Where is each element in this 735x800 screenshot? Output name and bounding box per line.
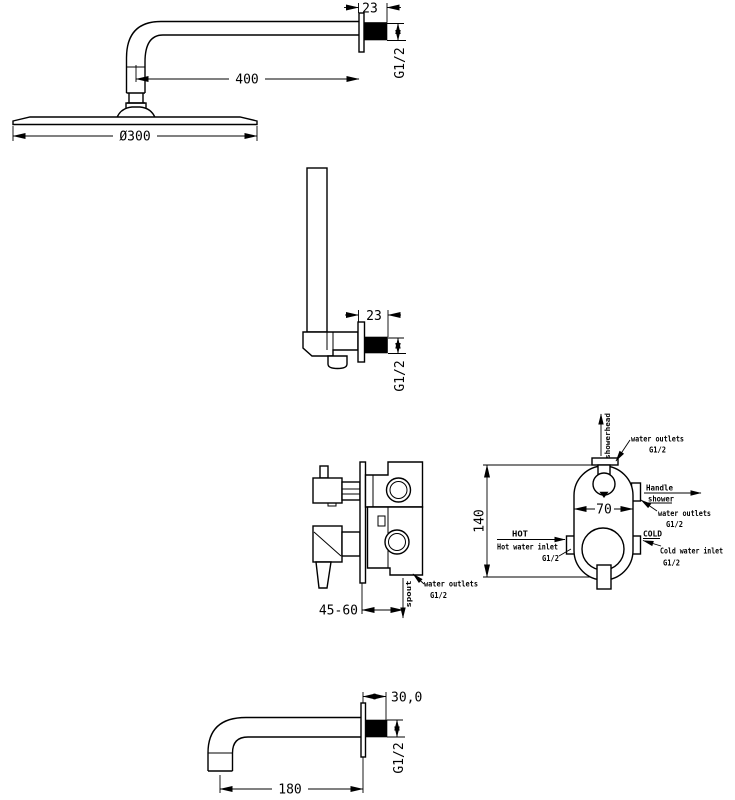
dim-g12-text: G1/2 (393, 360, 408, 391)
handshower-handle-bar (307, 168, 327, 332)
water-outlets-text: water outlets (658, 509, 711, 518)
dim-400: 400 (136, 65, 359, 88)
g12-text: G1/2 (542, 554, 559, 563)
g12-text: G1/2 (663, 559, 680, 568)
g12-text: G1/2 (649, 446, 666, 455)
dim-diameter-300: Ø300 (13, 126, 257, 145)
shower-head-disc (13, 117, 257, 125)
spout-inner-edge (233, 737, 362, 771)
dim-g12-text: G1/2 (393, 47, 408, 78)
right-water-outlet-label: water outlets G1/2 (641, 500, 711, 529)
dim-400-text: 400 (235, 73, 258, 88)
water-outlets-text: water outlets (424, 580, 478, 589)
dim-g12-head: G1/2 (387, 24, 408, 79)
wall-flange (359, 13, 364, 52)
dim-45-60-text: 45-60 (319, 604, 358, 619)
dim-140-text: 140 (473, 509, 488, 532)
shower-text: shower (648, 495, 674, 504)
lower-connector (342, 532, 360, 556)
dim-extension-lines (387, 24, 406, 41)
side-water-outlet-label: water outlets G1/2 (413, 574, 478, 600)
diverter-knob-nub (328, 503, 336, 506)
top-outlet-flange (592, 458, 618, 465)
dim-extension-lines (388, 338, 406, 354)
shower-head-assembly: 23 G1/2 400 Ø300 (13, 2, 408, 145)
g12-text: G1/2 (430, 591, 447, 600)
shower-arm-neck (127, 93, 146, 103)
valve-side-view: 45-60 spout water outlets G1/2 (313, 462, 478, 619)
diverter-knob-stem (320, 466, 328, 478)
bottom-outlet-stub (597, 565, 611, 589)
hot-tag-text: HOT (512, 530, 528, 539)
dim-180-text: 180 (278, 783, 301, 798)
top-water-outlet-label: water outlets G1/2 (616, 435, 684, 462)
dim-180: 180 (220, 757, 363, 798)
g12-text: G1/2 (666, 520, 683, 529)
spout-direction-text: spout (405, 581, 413, 608)
cold-inlet-arrow (643, 541, 661, 547)
technical-drawing-page: 23 G1/2 400 Ø300 2 (0, 0, 735, 800)
handle-text: Handle (646, 484, 673, 493)
showerhead-direction-text: showerhead (604, 413, 612, 459)
leader-line (616, 440, 630, 461)
dim-70-text: 70 (596, 503, 612, 518)
dim-30-text: 30,0 (391, 691, 422, 706)
dim-23-text: 23 (366, 309, 382, 324)
bath-spout-assembly: 30,0 G1/2 180 (208, 691, 422, 798)
dim-g12-spout: G1/2 (387, 720, 407, 774)
temperature-dial (582, 528, 624, 570)
shower-head-ball-joint-dome (117, 107, 155, 118)
dim-g12-text: G1/2 (392, 742, 407, 773)
dim-23-head: 23 (344, 2, 401, 23)
upper-connector (342, 482, 360, 500)
dim-extension-lines (387, 720, 405, 737)
dim-d300-text: Ø300 (119, 130, 150, 145)
dim-23-text: 23 (362, 2, 378, 17)
cold-water-inlet-text: Cold water inlet (660, 546, 723, 556)
cold-inlet-label: COLD Cold water inlet G1/2 (643, 530, 723, 568)
holder-bracket (303, 332, 358, 356)
escutcheon-plate (360, 462, 366, 583)
thread-block (366, 720, 388, 737)
handle-shower-label: Handle shower (644, 484, 701, 504)
valve-front-view: 140 showerhead 70 water outlets G1/2 Han… (473, 413, 724, 589)
hot-water-inlet-text: Hot water inlet (497, 542, 558, 552)
diverter-knob-body (313, 478, 342, 503)
hose-outlet-nub (328, 356, 347, 369)
handshower-outlet-assembly: 23 G1/2 (303, 168, 408, 392)
wall-flange (361, 703, 366, 757)
water-outlets-text: water outlets (631, 435, 684, 444)
shower-system-technical-drawing: 23 G1/2 400 Ø300 2 (0, 0, 735, 800)
thread-block (364, 23, 387, 41)
hot-inlet-label: HOT Hot water inlet G1/2 (497, 530, 571, 564)
lever-handle-grip (316, 562, 331, 588)
wall-flange (358, 322, 365, 362)
thread-block (365, 337, 388, 353)
spout-outer-edge (208, 718, 361, 772)
dim-45-60: 45-60 spout (319, 578, 413, 619)
cold-tag-text: COLD (643, 530, 662, 539)
dim-g12-outlet: G1/2 (388, 338, 408, 392)
dim-30: 30,0 (363, 691, 422, 721)
